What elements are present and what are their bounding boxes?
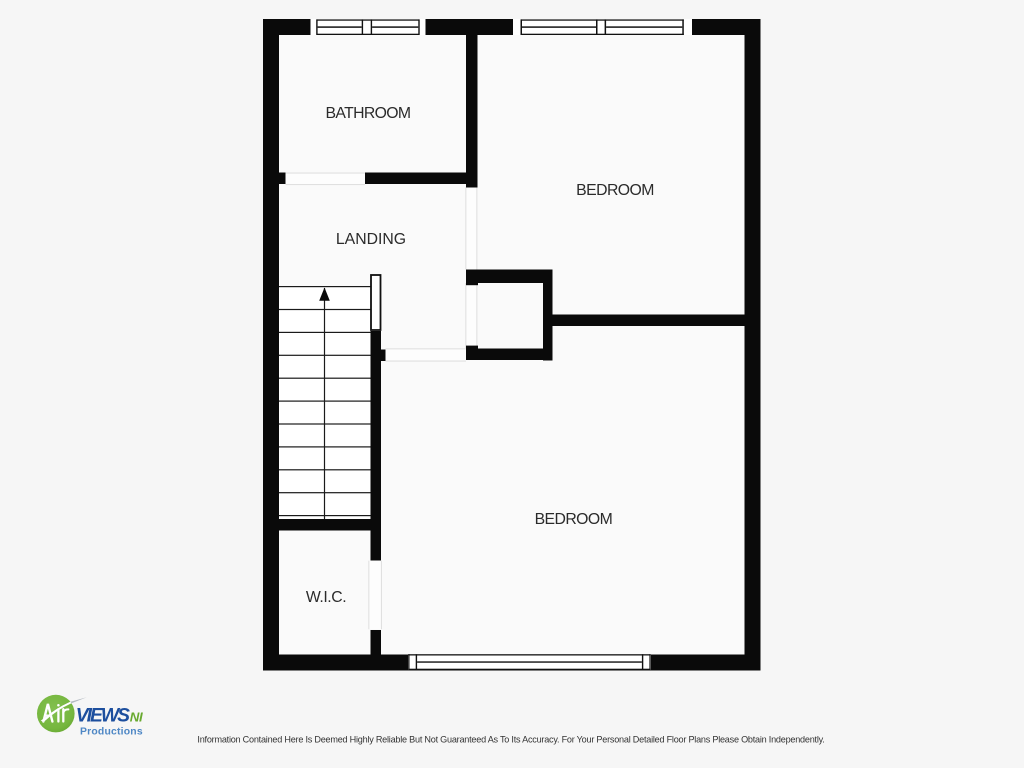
svg-text:W.I.C.: W.I.C. bbox=[306, 589, 346, 606]
svg-text:BEDROOM: BEDROOM bbox=[535, 511, 613, 528]
svg-text:VIEWS: VIEWS bbox=[76, 705, 130, 726]
svg-text:LANDING: LANDING bbox=[336, 231, 406, 248]
svg-text:NI: NI bbox=[130, 709, 143, 724]
svg-text:Productions: Productions bbox=[80, 727, 143, 738]
svg-text:BATHROOM: BATHROOM bbox=[326, 105, 411, 122]
svg-text:BEDROOM: BEDROOM bbox=[576, 182, 654, 199]
svg-text:Information Contained Here Is: Information Contained Here Is Deemed Hig… bbox=[197, 735, 824, 745]
